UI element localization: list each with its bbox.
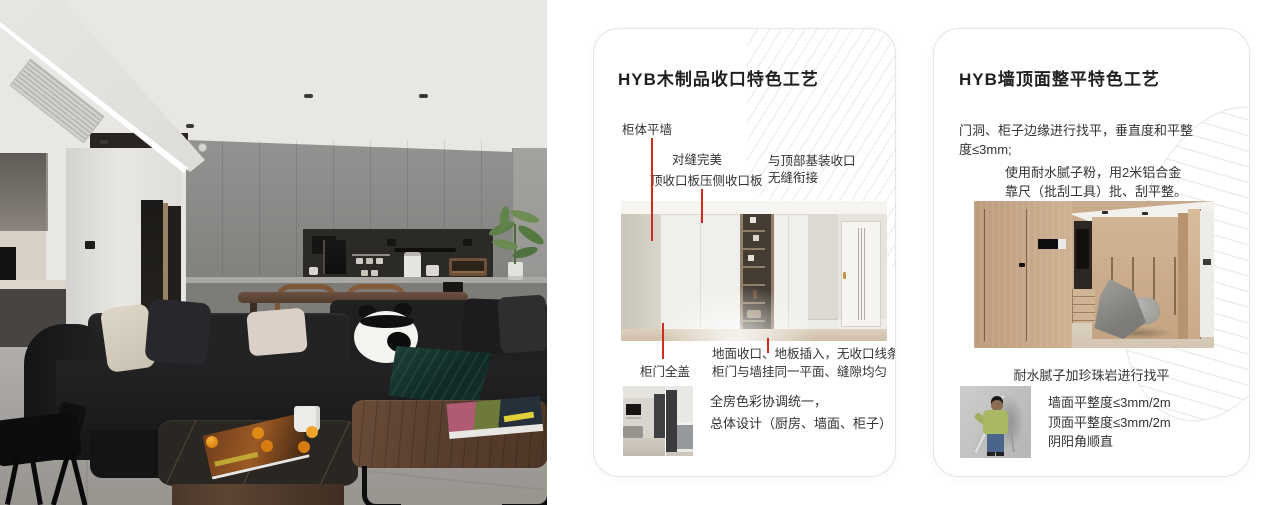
pillow-pink [246, 308, 308, 357]
thumb-floor [623, 438, 665, 456]
kitchen-upper-cabinet [0, 153, 48, 231]
hallway-photo-image [974, 201, 1214, 348]
lounge-chair [0, 404, 92, 505]
page: HYB木制品收口特色工艺 柜体平墙 对缝完美 顶收口板压侧收口板 与顶部基装收口… [0, 0, 1280, 505]
callout-ceiling-joint: 与顶部基装收口 无缝衔接 [768, 153, 856, 187]
thumbnail-living-room [623, 386, 665, 456]
worker-shirt [983, 410, 1008, 435]
thermostat-panel [1038, 239, 1066, 249]
fridge-cabinet [666, 390, 677, 452]
chair-leg [70, 452, 88, 505]
door-groove [858, 228, 859, 320]
sofa-shape [623, 426, 643, 438]
render-ceiling [621, 201, 887, 215]
note-line: 总体设计（厨房、墙面、柜子） [710, 413, 892, 435]
spotlight [186, 124, 194, 128]
chair-leg [51, 454, 70, 505]
note-line: 全房色彩协调统一， [710, 391, 892, 413]
callout-line: 无缝衔接 [768, 170, 856, 187]
orange-fruit [206, 436, 218, 448]
thumb-floor [666, 452, 693, 456]
callout-top-closing-board: 顶收口板压侧收口板 [650, 170, 763, 189]
table-leg-metal [502, 468, 547, 505]
leader-line [662, 323, 664, 359]
panda-brow-band [360, 315, 414, 328]
corner-panel [1178, 213, 1188, 339]
hanging-rail [394, 248, 456, 252]
leveling-specs: 墙面平整度≤3mm/2m 顶面平整度≤3mm/2m 阴阳角顺直 [1048, 393, 1171, 452]
para-line: 度≤3mm; [959, 140, 1193, 159]
ceiling-sensor [198, 143, 207, 152]
thumbnail-kitchen [666, 386, 693, 456]
kitchen-lower-mini [677, 425, 693, 449]
para-line: 靠尺（批刮工具）批、刮平整。 [1005, 182, 1187, 201]
recessed-outlet [443, 282, 463, 292]
wall-art [1203, 259, 1211, 265]
spotlight [100, 140, 108, 144]
paragraph-leveling: 门洞、柜子边缘进行找平，垂直度和平整 度≤3mm; [959, 121, 1193, 159]
mug [294, 406, 320, 432]
bright-room-opening [1200, 211, 1214, 337]
chair-leg [30, 460, 43, 505]
decor-item [750, 217, 756, 223]
plant-leaf [516, 222, 546, 247]
note-line: 柜门与墙挂同一平面、缝隙均匀 [712, 363, 896, 381]
spotlight [419, 94, 428, 98]
leader-line [701, 189, 703, 223]
card-title: HYB墙顶面整平特色工艺 [959, 65, 1160, 90]
tv-screen [626, 404, 641, 415]
para-line: 门洞、柜子边缘进行找平，垂直度和平整 [959, 121, 1193, 140]
door-seam [984, 209, 985, 341]
para-line: 使用耐水腻子粉，用2米铝合金 [1005, 163, 1187, 182]
stone-table-base [172, 484, 344, 505]
magazine-title [214, 452, 258, 467]
wood-wall-left [974, 201, 1072, 348]
tall-cabinet [654, 394, 665, 440]
callout-line: 与顶部基装收口 [768, 153, 856, 170]
card-wood-finish-craft: HYB木制品收口特色工艺 柜体平墙 对缝完美 顶收口板压侧收口板 与顶部基装收口… [593, 28, 896, 477]
callout-perfect-seam: 对缝完美 [672, 149, 722, 168]
door-handle [1019, 263, 1025, 267]
drawer-lines [1073, 289, 1095, 323]
plant-vase [508, 262, 523, 280]
spec-line: 墙面平整度≤3mm/2m [1048, 393, 1171, 413]
ceiling-spotlight [1102, 211, 1108, 214]
living-room-photo [0, 0, 547, 505]
spec-line: 阴阳角顺直 [1048, 432, 1171, 452]
note-line: 地面收口、地板插入，无收口线条 [712, 345, 896, 363]
potted-plant [488, 206, 547, 283]
worker-jeans [987, 434, 1004, 453]
card-wall-leveling-craft: HYB墙顶面整平特色工艺 门洞、柜子边缘进行找平，垂直度和平整 度≤3mm; 使… [933, 28, 1250, 477]
wood-grain [974, 201, 1072, 348]
design-summary-note: 全房色彩协调统一， 总体设计（厨房、墙面、柜子） [710, 391, 892, 435]
pillow-dark [497, 294, 547, 353]
floor-joint-note: 地面收口、地板插入，无收口线条 柜门与墙挂同一平面、缝隙均匀 [712, 345, 896, 381]
callout-full-cover-door: 柜门全盖 [640, 361, 690, 380]
blanket-folds [388, 346, 492, 406]
spec-line: 顶面平整度≤3mm/2m [1048, 413, 1171, 433]
cup [309, 267, 318, 275]
table-leg-metal [362, 466, 401, 505]
closet-niche [1074, 221, 1092, 289]
thumbnail-worker-leveling [960, 386, 1031, 458]
pillow-black [144, 298, 211, 365]
hanging-clothes [1076, 229, 1089, 269]
paragraph-putty: 使用耐水腻子粉，用2米铝合金 靠尺（批刮工具）批、刮平整。 [1005, 163, 1187, 201]
drawers [1072, 289, 1095, 323]
white-door [841, 221, 881, 327]
wall-socket [387, 239, 396, 246]
cups [356, 258, 363, 264]
render-glow [651, 279, 821, 341]
media-console [626, 417, 641, 419]
leader-line [651, 138, 653, 241]
image-caption: 耐水腻子加珍珠岩进行找平 [934, 365, 1249, 384]
radio-face [452, 261, 484, 273]
espresso-machine [323, 240, 346, 274]
spotlight [304, 94, 313, 98]
callout-cabinet-flush-wall: 柜体平墙 [622, 119, 672, 138]
door-handle [843, 272, 846, 279]
wardrobe-render-image [621, 201, 887, 341]
card-title: HYB木制品收口特色工艺 [618, 65, 819, 90]
worker-shoe [987, 452, 995, 456]
light-switch [85, 241, 95, 249]
kettle [426, 265, 439, 276]
